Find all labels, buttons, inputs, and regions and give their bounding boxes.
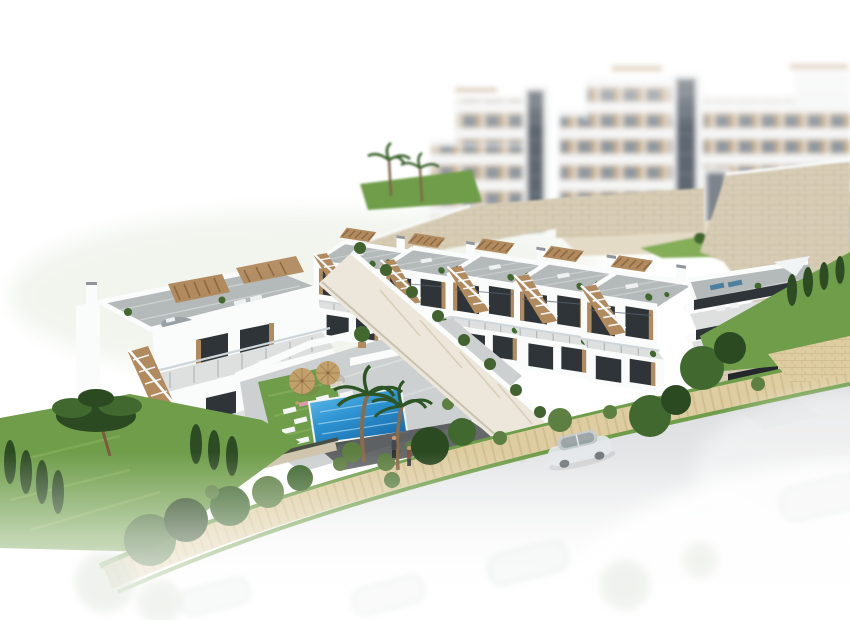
top-fade <box>0 0 850 130</box>
architectural-render <box>0 0 850 620</box>
render-canvas <box>0 0 850 620</box>
